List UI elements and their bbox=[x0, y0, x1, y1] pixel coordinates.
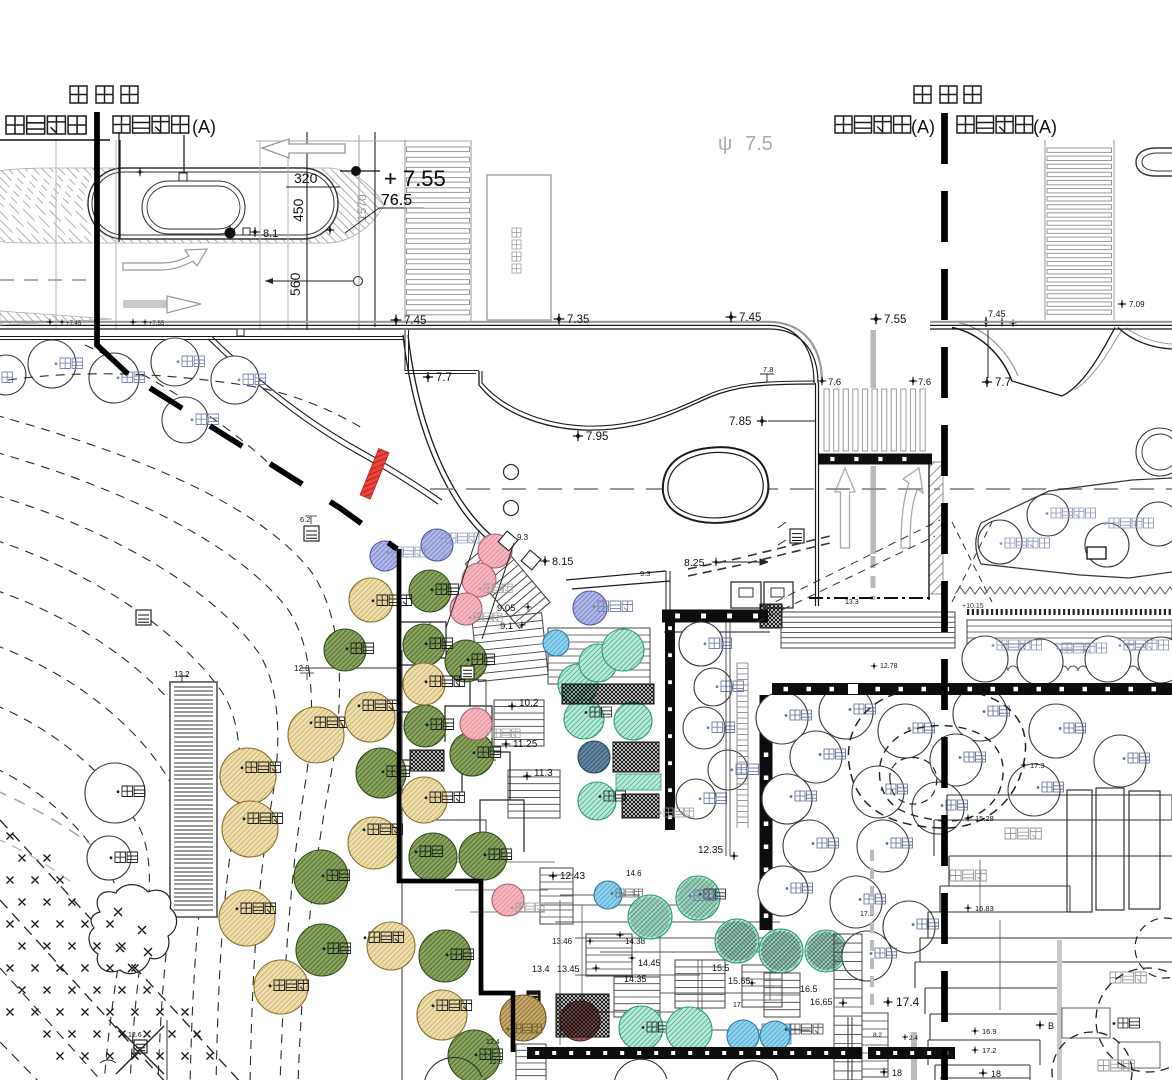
svg-text:7.7: 7.7 bbox=[995, 377, 1011, 389]
svg-text:+ 7.55: + 7.55 bbox=[384, 166, 446, 191]
svg-text:76.5: 76.5 bbox=[381, 192, 412, 209]
svg-text:14.35: 14.35 bbox=[624, 974, 647, 984]
svg-text:2.4: 2.4 bbox=[909, 1035, 918, 1042]
svg-text:14.45: 14.45 bbox=[638, 958, 661, 968]
svg-text:450: 450 bbox=[290, 198, 306, 222]
svg-text:560: 560 bbox=[287, 272, 303, 296]
svg-text:8.2: 8.2 bbox=[873, 1032, 882, 1039]
svg-text:7.85: 7.85 bbox=[729, 416, 751, 428]
svg-text:15.5: 15.5 bbox=[712, 963, 730, 973]
svg-text:+7.55: +7.55 bbox=[149, 321, 165, 327]
svg-text:16.9: 16.9 bbox=[982, 1027, 997, 1036]
svg-text:7.8: 7.8 bbox=[763, 365, 773, 374]
svg-text:12.43: 12.43 bbox=[560, 871, 585, 882]
svg-text:7.35: 7.35 bbox=[567, 314, 589, 326]
svg-text:+7.45: +7.45 bbox=[66, 321, 82, 327]
svg-text:14.6: 14.6 bbox=[626, 869, 642, 878]
svg-text:8.1: 8.1 bbox=[263, 228, 278, 240]
svg-text:12.78: 12.78 bbox=[880, 663, 898, 670]
svg-text:7.6: 7.6 bbox=[828, 377, 841, 388]
svg-text:10.2: 10.2 bbox=[519, 698, 539, 709]
svg-text:15.55: 15.55 bbox=[728, 976, 751, 986]
svg-text:17.4: 17.4 bbox=[896, 995, 920, 1009]
svg-text:12.4: 12.4 bbox=[486, 1039, 500, 1046]
svg-text:7.09: 7.09 bbox=[1129, 300, 1145, 309]
svg-text:9.05: 9.05 bbox=[497, 603, 516, 614]
svg-text:12.8: 12.8 bbox=[489, 1059, 503, 1066]
svg-text:17: 17 bbox=[733, 1002, 741, 1009]
svg-text:11.3: 11.3 bbox=[534, 768, 553, 779]
svg-text:7.5: 7.5 bbox=[745, 133, 773, 155]
svg-text:9.3: 9.3 bbox=[517, 533, 529, 542]
svg-text:12.6: 12.6 bbox=[128, 1032, 142, 1039]
svg-text:7.95: 7.95 bbox=[586, 431, 608, 443]
svg-text:9.1: 9.1 bbox=[500, 621, 513, 632]
svg-text:16.83: 16.83 bbox=[975, 904, 994, 913]
svg-text:7.6: 7.6 bbox=[918, 377, 931, 388]
svg-text:(A): (A) bbox=[1033, 117, 1057, 137]
svg-text:7.45: 7.45 bbox=[988, 309, 1006, 319]
svg-text:7.45: 7.45 bbox=[404, 315, 426, 327]
svg-text:B: B bbox=[1048, 1021, 1054, 1031]
svg-text:15.28: 15.28 bbox=[975, 814, 994, 823]
svg-text:7.7: 7.7 bbox=[436, 372, 452, 384]
svg-text:16.5: 16.5 bbox=[800, 984, 818, 994]
svg-text:18: 18 bbox=[991, 1069, 1001, 1079]
svg-text:320: 320 bbox=[294, 170, 318, 186]
svg-text:11.25: 11.25 bbox=[513, 739, 538, 750]
svg-text:8.15: 8.15 bbox=[552, 556, 573, 568]
svg-text:+10.15: +10.15 bbox=[962, 603, 984, 610]
svg-text:13.4: 13.4 bbox=[532, 964, 550, 974]
svg-text:7.45: 7.45 bbox=[739, 312, 761, 324]
svg-text:7.55: 7.55 bbox=[884, 314, 906, 326]
svg-text:16.65: 16.65 bbox=[810, 997, 833, 1007]
svg-text:(A): (A) bbox=[911, 117, 935, 137]
svg-text:9.3: 9.3 bbox=[640, 569, 650, 578]
svg-text:18: 18 bbox=[892, 1068, 902, 1078]
svg-text:13.3: 13.3 bbox=[845, 599, 859, 606]
svg-text:(A): (A) bbox=[192, 117, 216, 137]
svg-text:13.46: 13.46 bbox=[552, 937, 573, 946]
svg-text:ψ: ψ bbox=[718, 133, 732, 155]
svg-text:17.3: 17.3 bbox=[1030, 761, 1045, 770]
svg-text:12.35: 12.35 bbox=[698, 845, 723, 856]
svg-text:17.2: 17.2 bbox=[982, 1046, 997, 1055]
